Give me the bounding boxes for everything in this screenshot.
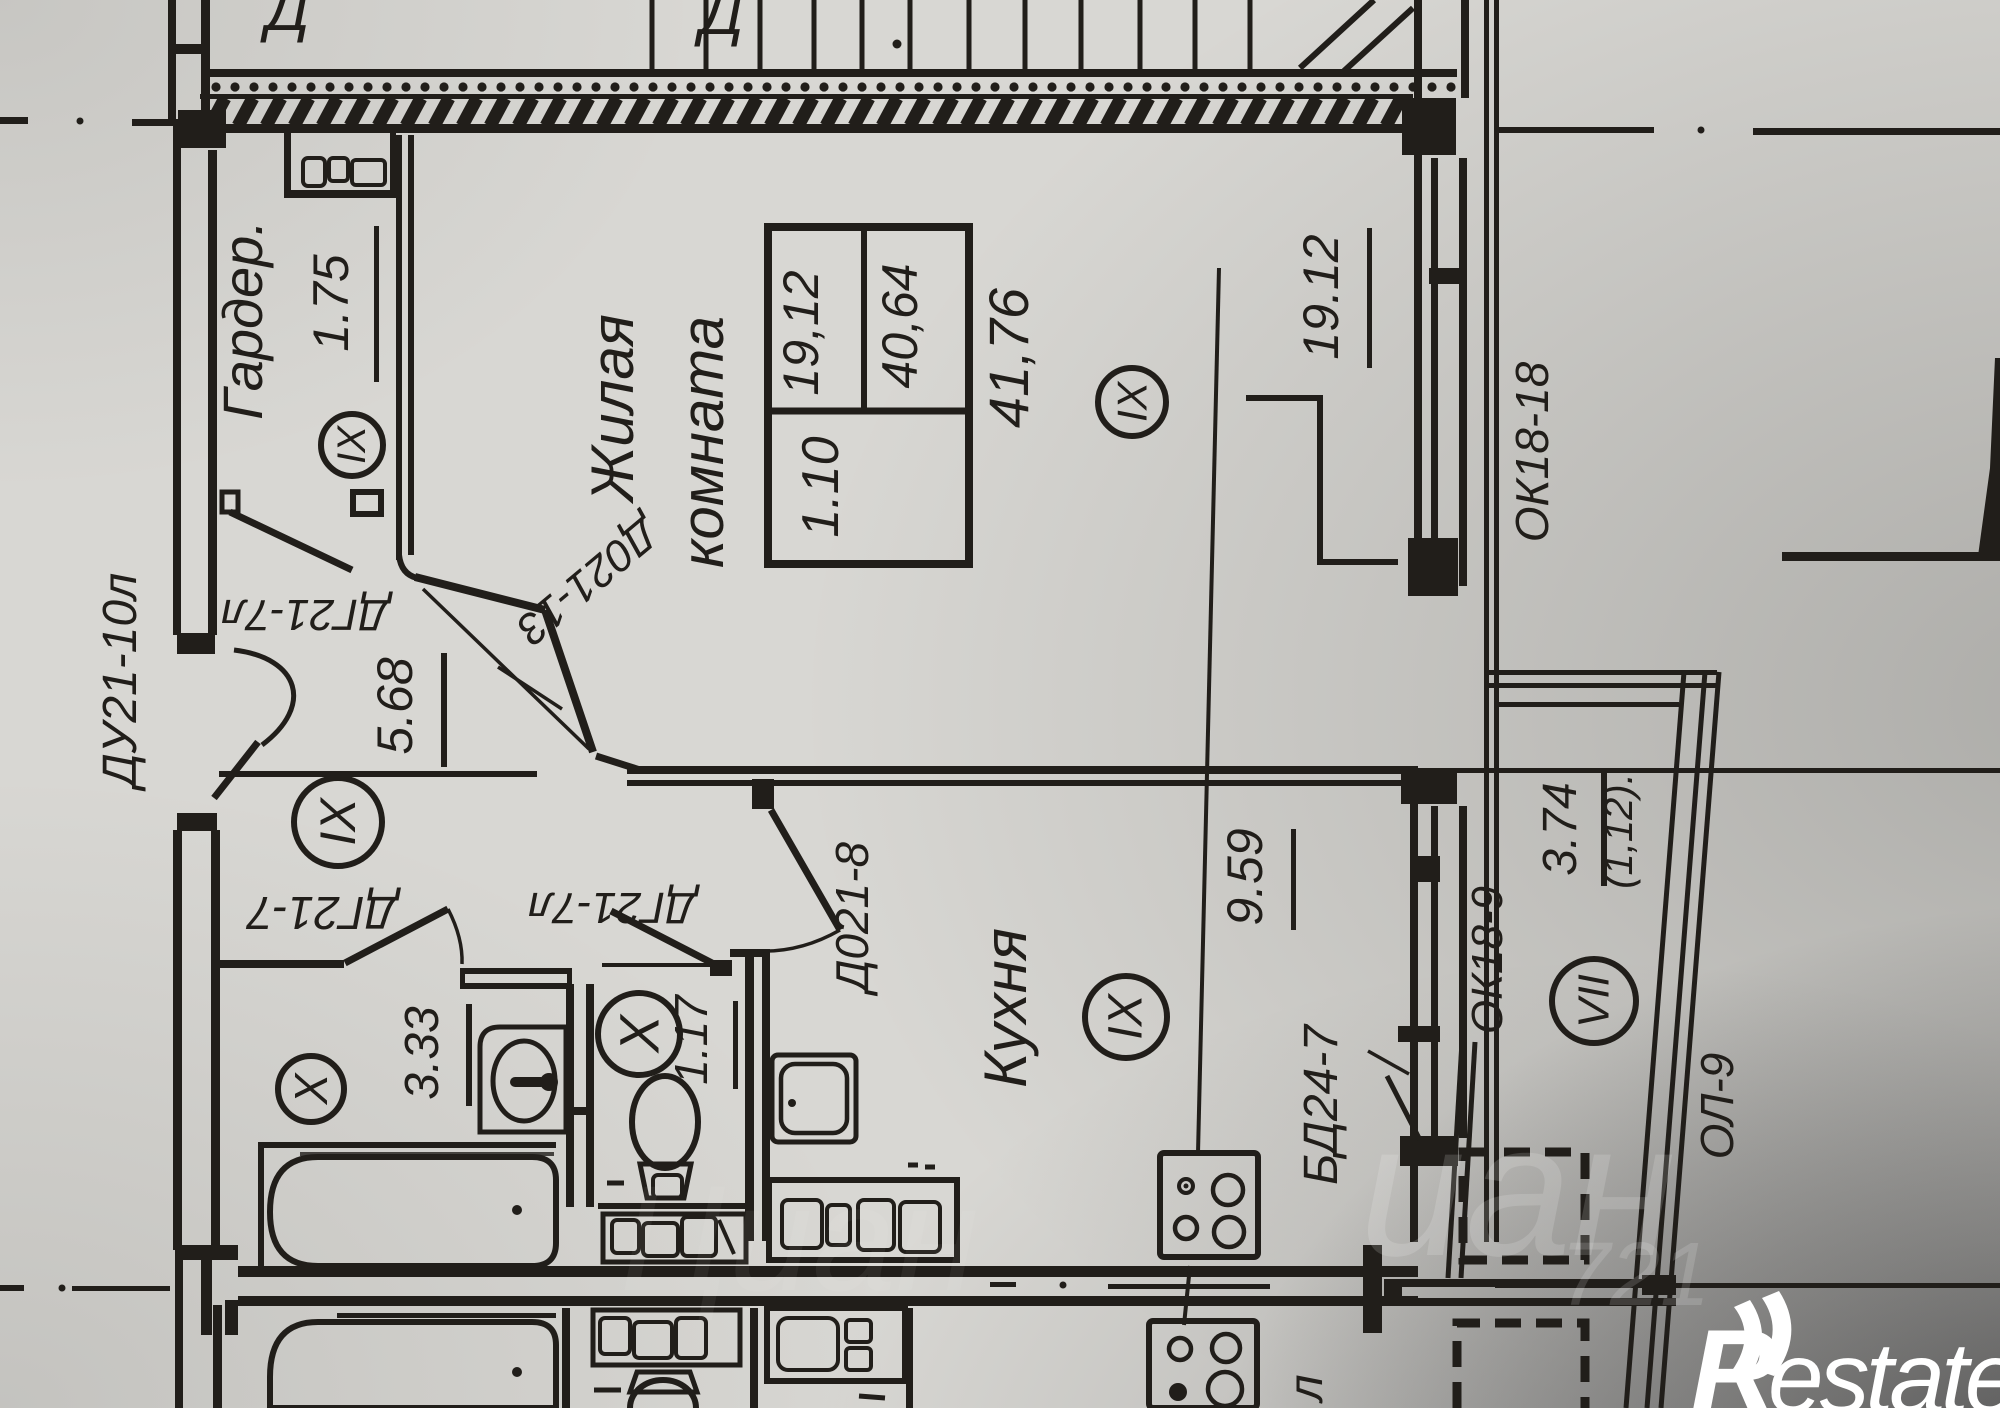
svg-text:721: 721 [1560,1225,1710,1325]
svg-text:5.68: 5.68 [367,657,423,755]
svg-text:Гардер.: Гардер. [211,220,274,420]
svg-text:ДУ21-10л: ДУ21-10л [94,573,147,792]
svg-text:ОК18-18: ОК18-18 [1506,361,1558,542]
svg-text:40,64: 40,64 [872,263,928,388]
svg-text:ДГ21-7л: ДГ21-7л [528,883,701,932]
svg-text:ДГ21-7л: ДГ21-7л [221,590,394,639]
svg-text:19,12: 19,12 [773,270,829,395]
svg-text:3.74: 3.74 [1534,782,1587,875]
svg-text:комната: комната [669,316,736,568]
svg-text:Д: Д [260,0,310,44]
svg-text:X: X [285,1071,337,1105]
svg-text:ОЛ-9: ОЛ-9 [1691,1053,1743,1160]
svg-text:IX: IX [330,425,374,464]
svg-text:Д021-8: Д021-8 [826,842,878,997]
svg-text:R: R [1690,1304,1778,1408]
svg-text:Кухня: Кухня [972,928,1039,1088]
svg-text:9.59: 9.59 [1217,828,1273,925]
svg-text:БД24-7: БД24-7 [1295,1023,1348,1185]
svg-text:(1,12).: (1,12). [1597,773,1641,889]
svg-text:ОК18-9: ОК18-9 [1463,886,1512,1034]
svg-text:19.12: 19.12 [1293,234,1349,359]
svg-text:1.17: 1.17 [665,994,717,1085]
svg-text:1.10: 1.10 [792,436,850,537]
svg-text:Циан: Циан [620,1154,978,1322]
svg-text:1.75: 1.75 [303,254,359,352]
svg-text:Д: Д [694,0,744,48]
svg-text:estate: estate [1768,1322,2000,1408]
svg-text:41,76: 41,76 [977,287,1040,428]
svg-text:Жилая: Жилая [579,314,646,505]
svg-text:X: X [608,1013,671,1055]
svg-text:3.33: 3.33 [396,1006,449,1100]
svg-text:IX: IX [1109,380,1156,422]
svg-text:ДГ21-7: ДГ21-7 [246,887,402,939]
svg-text:IX: IX [310,797,366,846]
svg-text:IX: IX [1100,992,1153,1039]
svg-text:VII: VII [1570,974,1619,1028]
svg-text:л: л [1280,1374,1333,1404]
